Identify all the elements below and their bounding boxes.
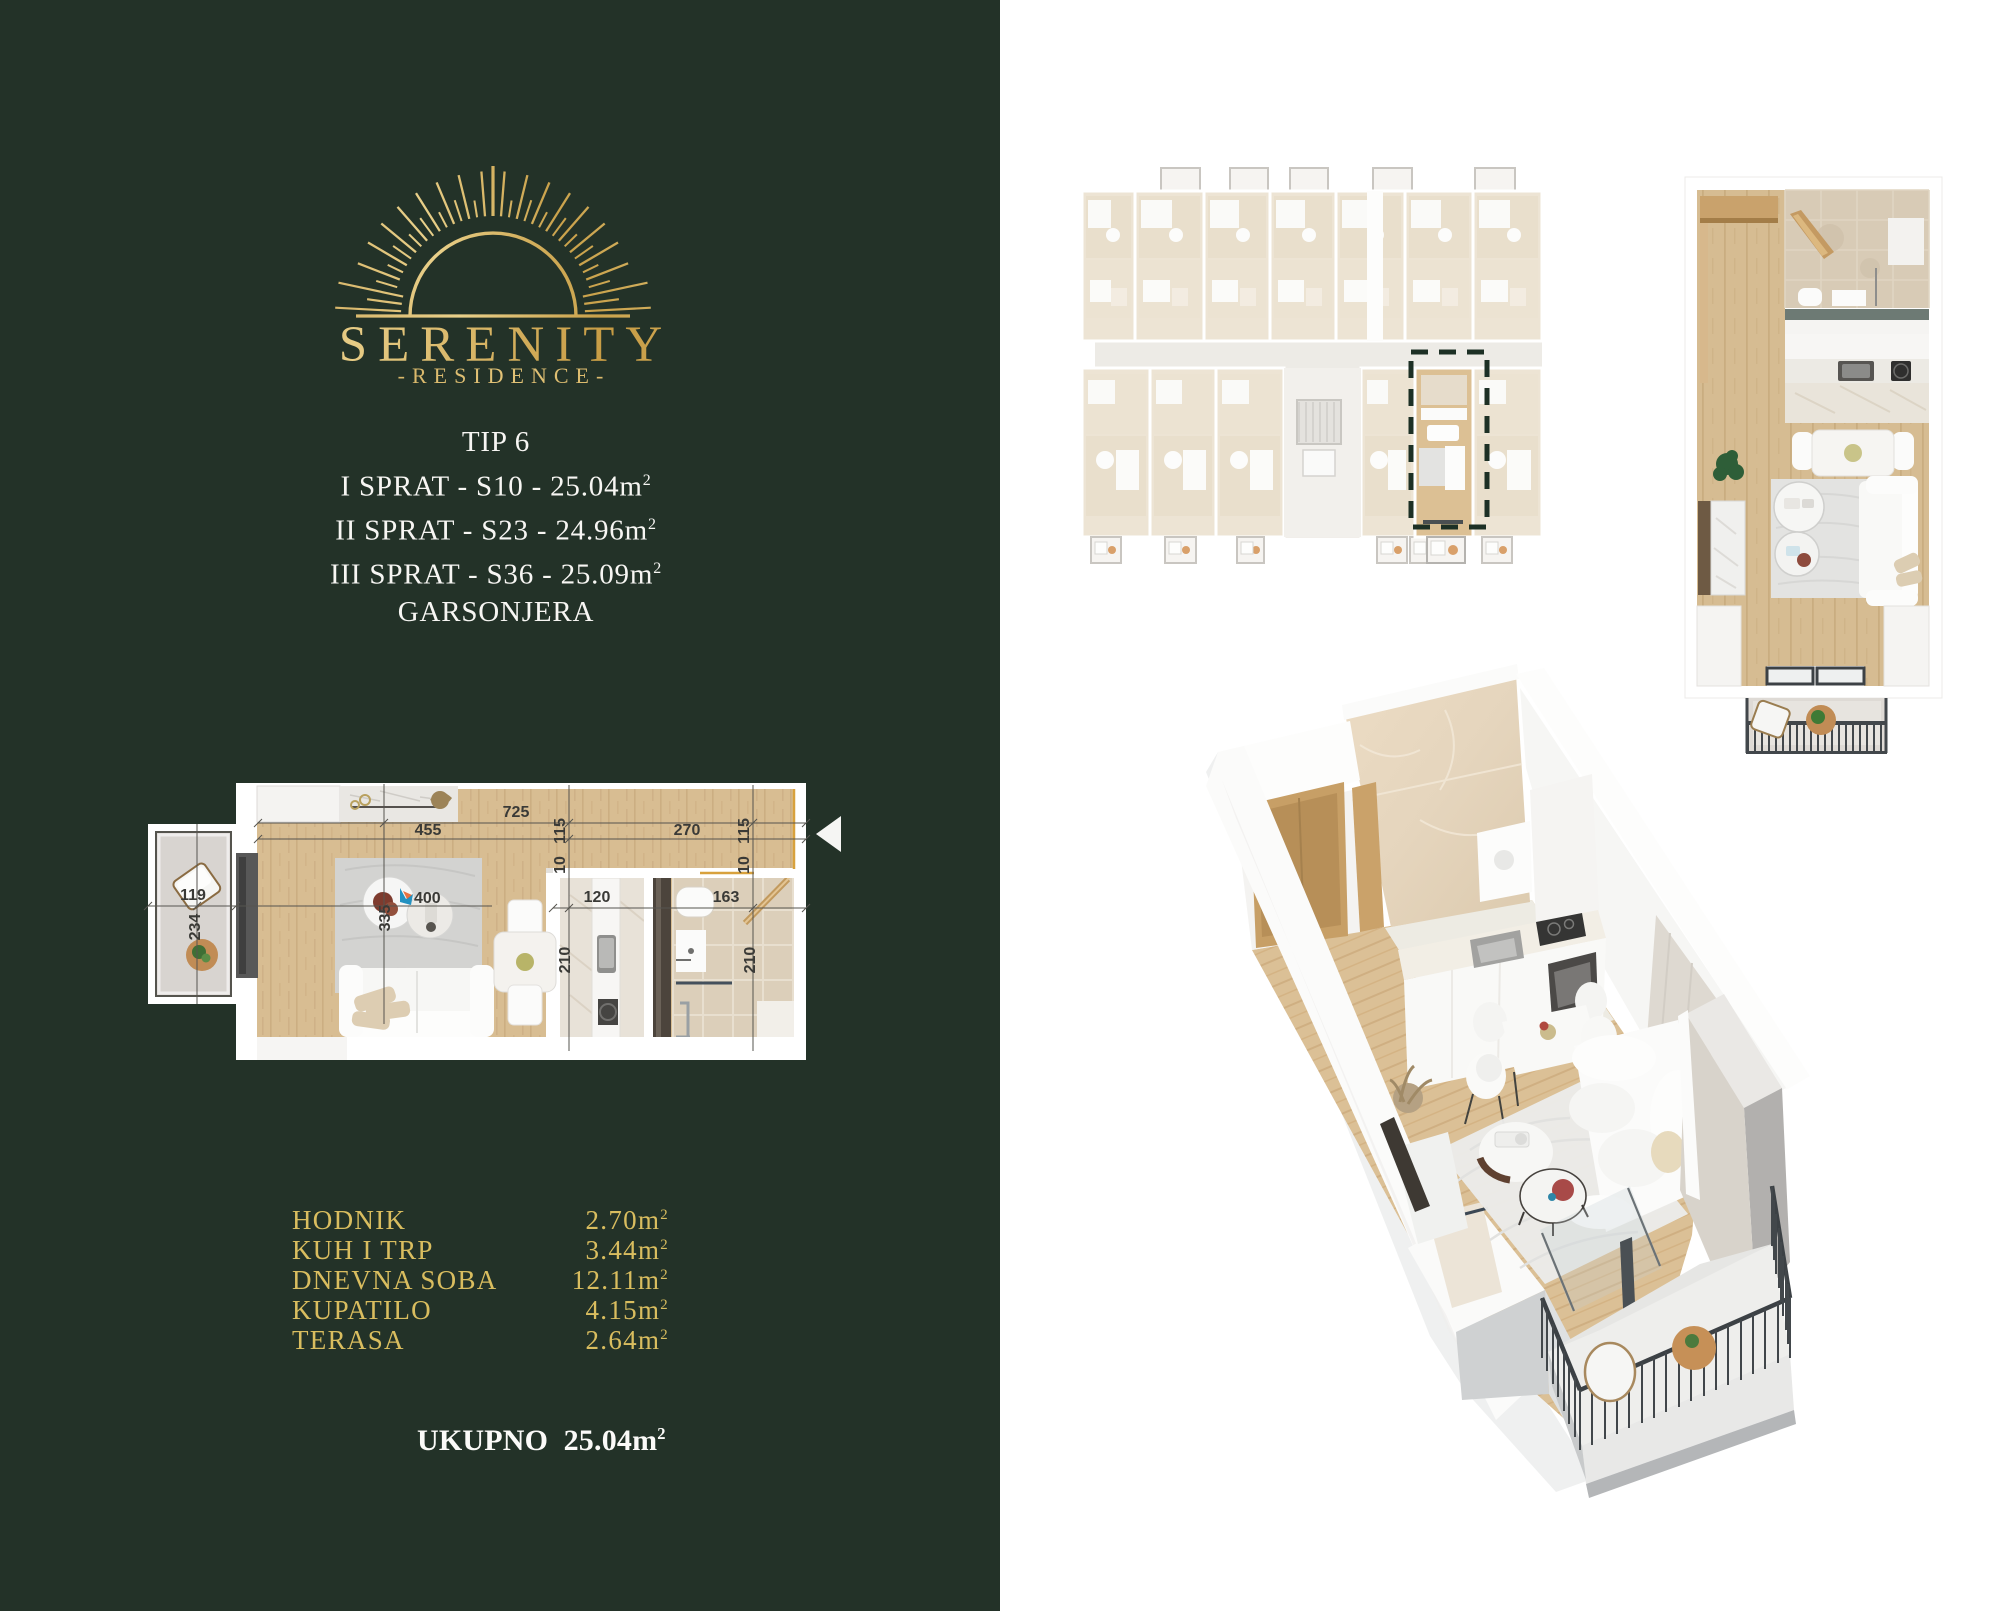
- svg-text:115: 115: [552, 818, 569, 844]
- svg-text:335: 335: [377, 905, 394, 932]
- svg-text:120: 120: [584, 889, 611, 906]
- svg-text:115: 115: [736, 818, 753, 844]
- svg-text:725: 725: [503, 804, 530, 821]
- svg-text:119: 119: [180, 887, 206, 904]
- svg-text:10: 10: [736, 856, 753, 874]
- svg-text:400: 400: [414, 890, 441, 907]
- svg-text:163: 163: [713, 889, 740, 906]
- svg-text:270: 270: [674, 822, 701, 839]
- svg-text:234: 234: [187, 914, 204, 941]
- svg-text:210: 210: [557, 947, 574, 974]
- svg-text:210: 210: [742, 947, 759, 974]
- svg-text:10: 10: [552, 856, 569, 874]
- svg-text:455: 455: [415, 822, 442, 839]
